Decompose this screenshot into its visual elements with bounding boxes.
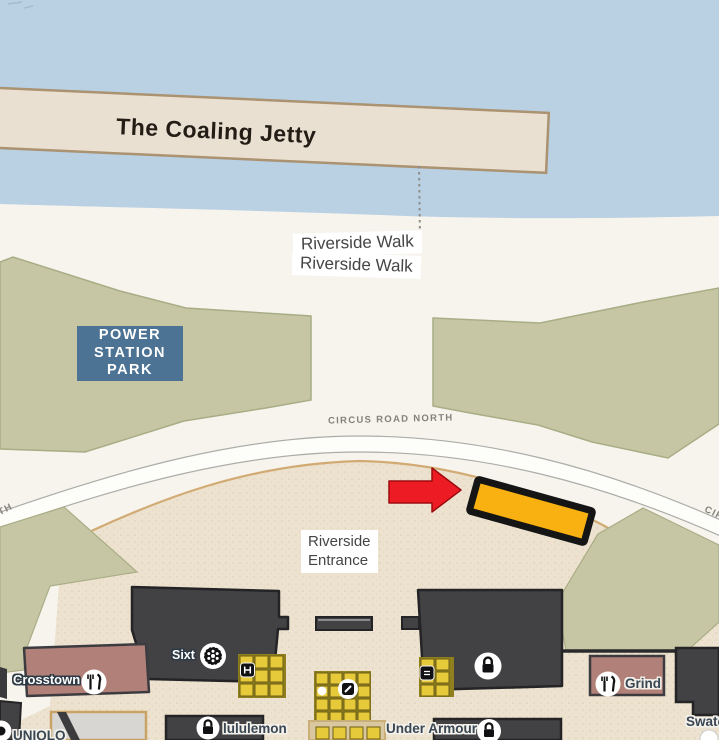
grind-restaurant-icon bbox=[596, 672, 621, 697]
store-label-grind: Grind bbox=[625, 676, 661, 691]
market-stall-center bbox=[314, 671, 371, 723]
entrance-gate-wall bbox=[316, 617, 372, 630]
psp-line1: POWER bbox=[77, 327, 183, 345]
venue-map: The Coaling Jetty Riverside Walk Riversi… bbox=[0, 0, 719, 740]
entrance-line2: Entrance bbox=[308, 551, 371, 570]
store-label-sixt: Sixt bbox=[172, 648, 195, 662]
market-stall-east-of-sixt bbox=[238, 654, 286, 698]
psp-line3: PARK bbox=[77, 362, 183, 380]
store-label-under-armour: Under Armour bbox=[386, 721, 477, 736]
power-station-park-sign: POWER STATION PARK bbox=[77, 326, 183, 381]
gate-wall-stub bbox=[402, 617, 419, 629]
west-wall-sliver bbox=[0, 667, 7, 699]
store-label-crosstown: Crosstown bbox=[13, 672, 80, 687]
store-label-swatch: Swatch bbox=[686, 714, 719, 729]
market-stall-bottom bbox=[309, 721, 385, 740]
entrance-line1: Riverside bbox=[308, 532, 371, 551]
psp-line2: STATION bbox=[77, 345, 183, 363]
store-label-uniqlo: UNIQLO bbox=[13, 728, 66, 740]
east-park-area bbox=[433, 288, 719, 458]
market-stall-west-of-entrance bbox=[419, 657, 454, 697]
lululemon-lock-icon bbox=[197, 717, 220, 740]
riverside-walk-label-2: Riverside Walk bbox=[292, 252, 421, 279]
riverside-entrance-label: Riverside Entrance bbox=[301, 530, 378, 573]
crosstown-restaurant-icon bbox=[82, 670, 107, 695]
stall-badge-icon bbox=[420, 666, 434, 680]
stall-edit-icon bbox=[338, 679, 358, 699]
stall-white-dot bbox=[318, 687, 327, 696]
sixt-wheel-icon bbox=[200, 643, 226, 669]
store-label-lululemon: lululemon bbox=[223, 721, 287, 736]
stall-h-icon bbox=[241, 663, 255, 677]
entrance-lock-icon bbox=[475, 653, 502, 680]
